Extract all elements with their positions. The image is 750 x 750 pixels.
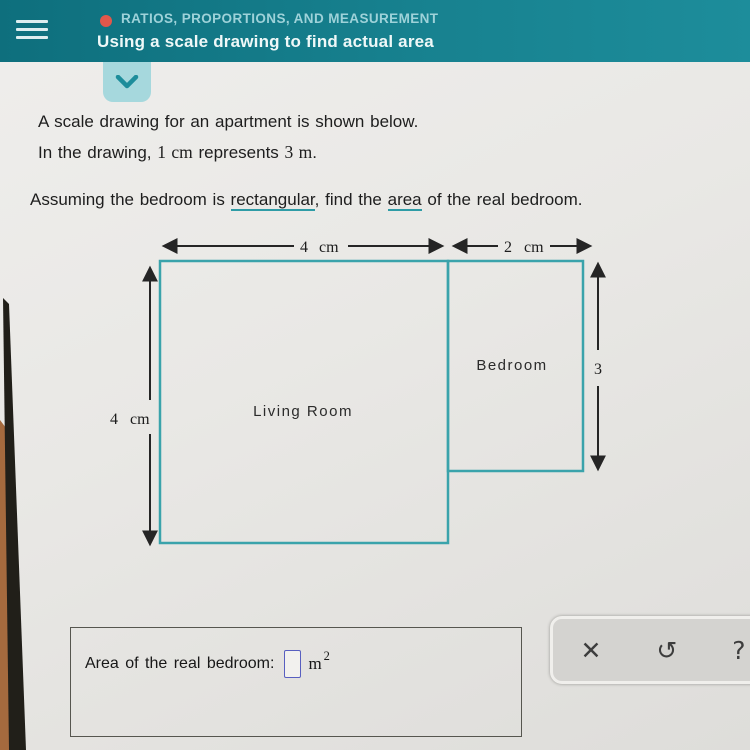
living-height-value: 4 [110,411,118,428]
collapse-panel-button[interactable] [103,62,151,102]
app-screen: RATIOS, PROPORTIONS, AND MEASUREMENT Usi… [0,0,750,750]
problem-line-2: In the drawing, 1 cm represents 3 m. [38,142,317,163]
menu-icon[interactable] [16,20,50,44]
bedroom-width-unit: cm [524,239,544,256]
answer-row: Area of the real bedroom: m2 [85,650,328,678]
desk-wood-edge [0,420,12,750]
undo-icon: ↺ [656,636,677,665]
photo-bezel [0,0,32,750]
category-label: RATIOS, PROPORTIONS, AND MEASUREMENT [121,11,438,26]
bedroom-label: Bedroom [476,357,547,374]
floor-plan-diagram: 4 cm 2 cm 4 cm 3 cm Living Room Bedroom [98,228,618,568]
help-icon: ? [732,636,745,665]
menu-bar-line [16,20,48,23]
living-width-unit: cm [319,239,339,256]
close-icon: ✕ [580,636,601,665]
living-width-value: 4 [300,239,308,256]
problem-line-1: A scale drawing for an apartment is show… [38,112,418,132]
header-bar: RATIOS, PROPORTIONS, AND MEASUREMENT Usi… [0,0,750,62]
glossary-link-rectangular[interactable]: rectangular [231,190,315,211]
unit-exponent: 2 [324,649,330,663]
living-room-label: Living Room [253,403,353,420]
bedroom-height-value: 3 [594,361,602,378]
toolbar-panel: ✕ ↺ ? [550,616,750,684]
living-height-unit: cm [130,411,150,428]
clear-button[interactable]: ✕ [570,634,611,667]
answer-prompt: Area of the real bedroom: [85,655,274,673]
question-text: Assuming the bedroom is [30,190,231,209]
menu-bar-line [16,36,48,39]
undo-button[interactable]: ↺ [646,634,687,667]
page-title: Using a scale drawing to find actual are… [97,32,434,52]
chevron-down-icon [115,75,139,89]
scale-drawing-length: 1 cm [157,142,193,162]
unit-base: m [308,654,321,673]
answer-input[interactable] [284,650,301,678]
menu-bar-line [16,28,48,31]
scale-text: . [312,143,317,162]
category-status-dot [100,15,112,27]
question-text: of the real bedroom. [422,190,583,209]
answer-unit: m2 [308,654,327,674]
help-button[interactable]: ? [722,634,750,667]
scale-text: In the drawing, [38,143,157,162]
scale-text: represents [193,143,285,162]
scale-real-length: 3 m [285,142,313,162]
question-text: , find the [315,190,388,209]
problem-line-3: Assuming the bedroom is rectangular, fin… [30,190,583,210]
living-room-rect [160,261,448,543]
answer-box: Area of the real bedroom: m2 [70,627,522,737]
glossary-link-area[interactable]: area [388,190,422,211]
screen-bezel-edge [3,298,26,750]
bedroom-width-value: 2 [504,239,512,256]
